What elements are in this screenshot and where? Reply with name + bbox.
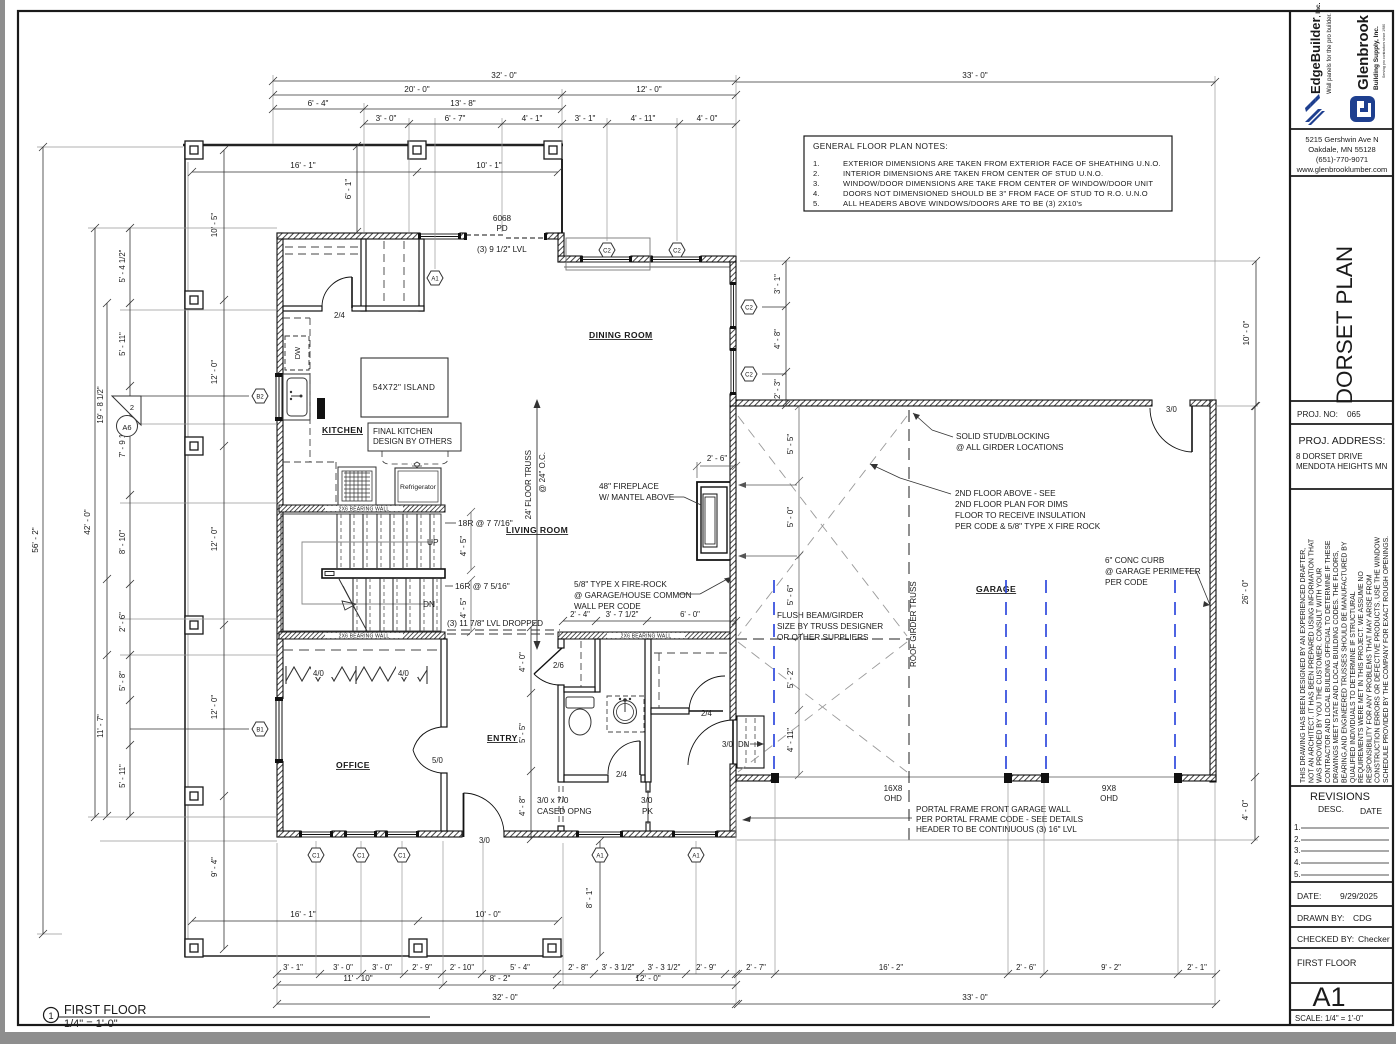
svg-text:6' - 4": 6' - 4" (308, 99, 329, 108)
svg-text:C2: C2 (673, 249, 681, 255)
svg-text:B2: B2 (256, 395, 264, 401)
svg-text:OHD: OHD (884, 794, 902, 803)
svg-text:PROJ. ADDRESS:: PROJ. ADDRESS: (1299, 435, 1386, 447)
svg-text:2' - 1": 2' - 1" (1187, 963, 1207, 972)
svg-text:Building Supply, Inc.: Building Supply, Inc. (1373, 26, 1380, 90)
svg-text:Checker: Checker (1358, 934, 1390, 944)
svg-text:2' - 6": 2' - 6" (1016, 963, 1036, 972)
svg-text:OHD: OHD (1100, 794, 1118, 803)
svg-text:4' - 11": 4' - 11" (631, 114, 656, 123)
svg-text:33' - 0": 33' - 0" (962, 71, 987, 80)
svg-text:FIRST FLOOR: FIRST FLOOR (1297, 958, 1357, 968)
svg-text:2X6 BEARING WALL: 2X6 BEARING WALL (339, 507, 390, 513)
svg-text:C1: C1 (312, 854, 320, 860)
svg-text:REVISIONS: REVISIONS (1310, 791, 1370, 803)
svg-text:2.: 2. (1294, 835, 1301, 844)
svg-text:2: 2 (130, 403, 134, 412)
svg-text:Glenbrook: Glenbrook (1355, 14, 1372, 90)
svg-text:3' - 1": 3' - 1" (575, 114, 596, 123)
svg-text:4' - 5": 4' - 5" (459, 536, 468, 557)
svg-text:INTERIOR DIMENSIONS ARE TAKEN: INTERIOR DIMENSIONS ARE TAKEN FROM CENTE… (843, 169, 1103, 178)
svg-text:3' - 7 1/2": 3' - 7 1/2" (606, 610, 639, 619)
svg-text:UP: UP (427, 537, 439, 547)
svg-text:5' - 4 1/2": 5' - 4 1/2" (118, 249, 127, 282)
svg-text:4' - 0": 4' - 0" (697, 114, 718, 123)
svg-text:5' - 11": 5' - 11" (118, 332, 127, 356)
svg-text:Refrigerator: Refrigerator (400, 484, 437, 491)
svg-text:8' - 2": 8' - 2" (490, 974, 511, 983)
svg-text:2.: 2. (813, 169, 819, 178)
svg-text:DN: DN (423, 599, 435, 609)
svg-text:OR OTHER SUPPLIERS: OR OTHER SUPPLIERS (777, 633, 869, 642)
svg-text:32' - 0": 32' - 0" (491, 71, 516, 80)
svg-text:CDG: CDG (1353, 913, 1372, 923)
svg-text:16R @ 7 5/16": 16R @ 7 5/16" (455, 581, 510, 591)
svg-text:3' - 3 1/2": 3' - 3 1/2" (602, 963, 635, 972)
svg-text:19' - 8 1/2": 19' - 8 1/2" (96, 386, 105, 423)
svg-text:DINING ROOM: DINING ROOM (589, 330, 653, 340)
svg-text:4' - 5": 4' - 5" (459, 598, 468, 619)
svg-text:A1: A1 (596, 854, 604, 860)
svg-text:CASED OPNG: CASED OPNG (537, 807, 592, 816)
svg-text:1.: 1. (813, 159, 819, 168)
svg-text:3' - 0": 3' - 0" (376, 114, 397, 123)
svg-text:Serving pro contractors since: Serving pro contractors since 1980 (1382, 24, 1386, 78)
svg-text:9' - 2": 9' - 2" (1101, 963, 1121, 972)
svg-text:5215 Gershwin Ave N: 5215 Gershwin Ave N (1305, 135, 1378, 144)
svg-text:OFFICE: OFFICE (336, 760, 370, 770)
svg-text:EXTERIOR DIMENSIONS ARE TAKEN: EXTERIOR DIMENSIONS ARE TAKEN FROM EXTER… (843, 159, 1161, 168)
svg-text:BEARING,AND ENGINEERED TRUSSES: BEARING,AND ENGINEERED TRUSSES SHOULD BE… (1342, 541, 1349, 783)
svg-text:KITCHEN: KITCHEN (322, 425, 363, 435)
svg-text:3' - 1": 3' - 1" (773, 274, 782, 294)
svg-text:065: 065 (1347, 410, 1361, 419)
svg-text:12' - 0": 12' - 0" (210, 695, 219, 719)
svg-text:ALL HEADERS ABOVE WINDOWS/DOOR: ALL HEADERS ABOVE WINDOWS/DOORS ARE TO B… (843, 199, 1082, 208)
svg-text:20' - 0": 20' - 0" (404, 85, 429, 94)
svg-text:56' - 2": 56' - 2" (31, 527, 40, 552)
svg-text:10' - 0": 10' - 0" (1242, 320, 1251, 345)
svg-text:W/ MANTEL ABOVE: W/ MANTEL ABOVE (599, 493, 675, 502)
svg-text:16' - 1": 16' - 1" (290, 910, 315, 919)
svg-text:5/8" TYPE X FIRE-ROCK: 5/8" TYPE X FIRE-ROCK (574, 580, 667, 589)
svg-text:2' - 9": 2' - 9" (412, 963, 432, 972)
svg-text:3/0 x 7/0: 3/0 x 7/0 (537, 796, 569, 805)
svg-text:2/6: 2/6 (553, 661, 564, 670)
svg-text:4.: 4. (813, 189, 819, 198)
svg-text:2' - 9": 2' - 9" (696, 963, 716, 972)
svg-text:2' - 6": 2' - 6" (118, 612, 127, 632)
svg-text:2ND FLOOR PLAN FOR DIMS: 2ND FLOOR PLAN FOR DIMS (955, 500, 1068, 509)
svg-text:www.glenbrooklumber.com: www.glenbrooklumber.com (1296, 165, 1388, 174)
svg-text:12' - 0": 12' - 0" (635, 974, 660, 983)
svg-text:PK: PK (642, 807, 653, 816)
svg-text:4/0: 4/0 (398, 669, 410, 678)
svg-text:Oakdale, MN 55128: Oakdale, MN 55128 (1308, 145, 1376, 154)
svg-text:B1: B1 (256, 728, 264, 734)
svg-text:DRAWINGS MEET STATE AND LOCAL: DRAWINGS MEET STATE AND LOCAL BUILDING C… (1333, 550, 1340, 783)
svg-text:RESPONSIBILITY FOR ANY PROBLEM: RESPONSIBILITY FOR ANY PROBLEMS THAT MAY… (1366, 574, 1373, 783)
svg-text:WAS PROVIDED BY YOU THE CUSTOM: WAS PROVIDED BY YOU THE CUSTOMER. CONSUL… (1317, 568, 1324, 783)
svg-text:6' - 0": 6' - 0" (680, 610, 700, 619)
svg-text:DESIGN BY OTHERS: DESIGN BY OTHERS (373, 437, 452, 446)
svg-text:4' - 8": 4' - 8" (773, 329, 782, 349)
svg-text:(651)-770-9071: (651)-770-9071 (1316, 155, 1368, 164)
svg-text:FINAL KITCHEN: FINAL KITCHEN (373, 427, 433, 436)
svg-text:REQUIREMENTS WERE MET IN THIS: REQUIREMENTS WERE MET IN THIS PROJECT. W… (1358, 571, 1365, 783)
svg-text:5' - 8": 5' - 8" (118, 671, 127, 691)
svg-text:3/0: 3/0 (479, 836, 491, 845)
svg-text:A6: A6 (122, 423, 131, 432)
svg-text:1/4" = 1'-0": 1/4" = 1'-0" (1325, 1014, 1363, 1023)
svg-text:18R @ 7 7/16": 18R @ 7 7/16" (458, 518, 513, 528)
svg-text:A1: A1 (431, 277, 439, 283)
svg-text:FLUSH BEAM/GIRDER: FLUSH BEAM/GIRDER (777, 611, 864, 620)
svg-text:16X8: 16X8 (884, 784, 903, 793)
svg-text:5/0: 5/0 (432, 756, 444, 765)
svg-text:9/29/2025: 9/29/2025 (1340, 891, 1378, 901)
svg-text:3' - 0": 3' - 0" (333, 963, 353, 972)
svg-text:13' - 8": 13' - 8" (450, 99, 475, 108)
svg-text:3.: 3. (813, 179, 819, 188)
svg-text:5' - 2": 5' - 2" (786, 668, 795, 689)
svg-text:5' - 4": 5' - 4" (510, 963, 530, 972)
svg-text:4' - 11": 4' - 11" (786, 728, 795, 752)
svg-text:9X8: 9X8 (1102, 784, 1117, 793)
svg-text:THIS DRAWING HAS BEEN DESIGNED: THIS DRAWING HAS BEEN DESIGNED BY AN EXP… (1300, 548, 1307, 783)
svg-text:DORSET PLAN: DORSET PLAN (1332, 246, 1357, 404)
svg-text:@ GARAGE PERIMETER: @ GARAGE PERIMETER (1105, 567, 1201, 576)
svg-text:SCHEDULE PROVIDED BY THE COMPA: SCHEDULE PROVIDED BY THE COMPANY FOR EXA… (1383, 536, 1390, 783)
svg-text:3/0: 3/0 (641, 796, 653, 805)
svg-text:2' - 10": 2' - 10" (450, 963, 474, 972)
svg-text:2/4: 2/4 (616, 770, 628, 779)
svg-text:(3) 9 1/2" LVL: (3) 9 1/2" LVL (477, 245, 527, 254)
svg-text:FLOOR TO RECEIVE INSULATION: FLOOR TO RECEIVE INSULATION (955, 511, 1086, 520)
svg-text:8 DORSET DRIVE: 8 DORSET DRIVE (1296, 452, 1363, 461)
svg-text:SOLID STUD/BLOCKING: SOLID STUD/BLOCKING (956, 432, 1050, 441)
svg-text:6" CONC CURB: 6" CONC CURB (1105, 556, 1165, 565)
svg-text:5' - 6": 5' - 6" (786, 585, 795, 606)
svg-text:42' - 0": 42' - 0" (83, 509, 92, 534)
svg-text:12' - 0": 12' - 0" (636, 85, 661, 94)
svg-text:SCALE:: SCALE: (1295, 1014, 1323, 1023)
svg-text:4' - 0": 4' - 0" (1241, 800, 1250, 821)
svg-text:6' - 1": 6' - 1" (344, 179, 353, 200)
svg-text:16' - 1": 16' - 1" (290, 161, 315, 170)
svg-text:9' - 4": 9' - 4" (210, 857, 219, 877)
svg-text:C2: C2 (745, 373, 753, 379)
svg-text:ROOF GIRDER TRUSS: ROOF GIRDER TRUSS (909, 581, 918, 667)
svg-text:PROJ. NO:: PROJ. NO: (1297, 410, 1338, 419)
svg-text:Wall panels for the pro builde: Wall panels for the pro builder. (1327, 13, 1333, 94)
svg-text:C2: C2 (745, 306, 753, 312)
svg-text:2' - 6": 2' - 6" (707, 454, 728, 463)
svg-text:ENTRY: ENTRY (487, 733, 518, 743)
svg-text:5.: 5. (1294, 870, 1301, 879)
svg-text:PER CODE: PER CODE (1105, 578, 1148, 587)
svg-text:3.: 3. (1294, 846, 1301, 855)
svg-text:3' - 3 1/2": 3' - 3 1/2" (648, 963, 681, 972)
svg-text:3' - 0": 3' - 0" (372, 963, 392, 972)
svg-text:5' - 0": 5' - 0" (786, 507, 795, 528)
svg-text:32' - 0": 32' - 0" (492, 993, 517, 1002)
svg-text:11' - 7": 11' - 7" (96, 714, 105, 738)
svg-text:GENERAL FLOOR PLAN NOTES:: GENERAL FLOOR PLAN NOTES: (813, 141, 948, 151)
svg-text:1.: 1. (1294, 823, 1301, 832)
svg-text:@ GARAGE/HOUSE COMMON: @ GARAGE/HOUSE COMMON (574, 591, 692, 600)
svg-text:@ 24" O.C.: @ 24" O.C. (538, 452, 547, 493)
svg-text:2' - 7": 2' - 7" (746, 963, 766, 972)
svg-text:QUALIFIED INDIVIDUALS TO DETER: QUALIFIED INDIVIDUALS TO DETERMINE IF ST… (1350, 591, 1357, 783)
svg-text:HEADER TO BE CONTINUOUS (3) 16: HEADER TO BE CONTINUOUS (3) 16" LVL (916, 825, 1077, 834)
svg-text:@ ALL GIRDER LOCATIONS: @ ALL GIRDER LOCATIONS (956, 443, 1064, 452)
svg-text:DRAWN BY:: DRAWN BY: (1297, 913, 1344, 923)
svg-text:2' - 4": 2' - 4" (570, 610, 590, 619)
svg-text:4' - 1": 4' - 1" (522, 114, 543, 123)
svg-text:5' - 5": 5' - 5" (518, 723, 527, 743)
svg-text:5' - 5": 5' - 5" (786, 434, 795, 455)
svg-text:A1: A1 (692, 854, 700, 860)
svg-text:11' - 10": 11' - 10" (343, 974, 372, 983)
svg-text:5' - 11": 5' - 11" (118, 764, 127, 788)
svg-text:54X72" ISLAND: 54X72" ISLAND (373, 383, 435, 392)
svg-text:33' - 0": 33' - 0" (962, 993, 987, 1002)
svg-text:8' - 10": 8' - 10" (118, 530, 127, 554)
svg-text:4.: 4. (1294, 858, 1301, 867)
svg-text:3/0: 3/0 (722, 740, 734, 749)
svg-text:DATE: DATE (1360, 806, 1382, 816)
svg-text:C2: C2 (603, 249, 611, 255)
svg-text:10' - 1": 10' - 1" (476, 161, 501, 170)
svg-text:8' - 1": 8' - 1" (585, 888, 594, 909)
svg-text:PER PORTAL FRAME CODE - SEE DE: PER PORTAL FRAME CODE - SEE DETAILS (916, 815, 1084, 824)
svg-text:C1: C1 (357, 854, 365, 860)
svg-text:6' - 7": 6' - 7" (445, 114, 466, 123)
svg-text:1/4" = 1'-0": 1/4" = 1'-0" (64, 1018, 118, 1030)
svg-text:DATE:: DATE: (1297, 891, 1321, 901)
svg-text:10' - 0": 10' - 0" (475, 910, 500, 919)
svg-text:CONTRACTOR AND LOCAL BUILDING: CONTRACTOR AND LOCAL BUILDING OFFICIAL T… (1325, 540, 1332, 783)
svg-text:GARAGE: GARAGE (976, 584, 1016, 594)
svg-text:4/0: 4/0 (313, 669, 325, 678)
svg-text:2/4: 2/4 (334, 311, 346, 320)
svg-text:4' - 8": 4' - 8" (518, 796, 527, 816)
svg-text:5.: 5. (813, 199, 819, 208)
svg-text:26' - 0": 26' - 0" (1241, 579, 1250, 604)
svg-text:DESC.: DESC. (1318, 804, 1344, 814)
svg-text:MENDOTA HEIGHTS MN: MENDOTA HEIGHTS MN (1296, 462, 1388, 471)
svg-text:WINDOW/DOOR DIMENSIONS ARE TAK: WINDOW/DOOR DIMENSIONS ARE TAKE FROM CEN… (843, 179, 1153, 188)
svg-text:4' - 0": 4' - 0" (518, 652, 527, 672)
svg-text:12' - 0": 12' - 0" (210, 360, 219, 384)
svg-text:CONSTRUCTION ERRORS OR DEFECTI: CONSTRUCTION ERRORS OR DEFECTIVE PRODUCT… (1375, 536, 1382, 783)
svg-text:3/0: 3/0 (1166, 405, 1178, 414)
svg-text:1: 1 (48, 1011, 53, 1022)
svg-text:48" FIREPLACE: 48" FIREPLACE (599, 482, 659, 491)
svg-text:24' FLOOR TRUSS: 24' FLOOR TRUSS (524, 450, 533, 519)
svg-text:PER CODE & 5/8" TYPE X FIRE RO: PER CODE & 5/8" TYPE X FIRE ROCK (955, 522, 1101, 531)
svg-text:2X6 BEARING WALL: 2X6 BEARING WALL (339, 634, 390, 640)
svg-text:DW: DW (293, 346, 302, 359)
svg-text:C1: C1 (398, 854, 406, 860)
svg-text:2' - 8": 2' - 8" (568, 963, 588, 972)
svg-text:2ND FLOOR ABOVE - SEE: 2ND FLOOR ABOVE - SEE (955, 489, 1056, 498)
svg-text:A1: A1 (1312, 982, 1345, 1012)
svg-text:16' - 2": 16' - 2" (879, 963, 903, 972)
svg-text:SIZE BY TRUSS DESIGNER: SIZE BY TRUSS DESIGNER (777, 622, 883, 631)
svg-text:FIRST FLOOR: FIRST FLOOR (64, 1003, 146, 1017)
svg-text:(3) 11 7/8" LVL DROPPED: (3) 11 7/8" LVL DROPPED (447, 619, 543, 628)
svg-text:3' - 1": 3' - 1" (283, 963, 303, 972)
svg-text:DOORS NOT DIMENSIONED SHOULD B: DOORS NOT DIMENSIONED SHOULD BE 3" FROM … (843, 189, 1148, 198)
svg-text:10' - 5": 10' - 5" (210, 213, 219, 237)
svg-text:DN: DN (738, 740, 749, 749)
svg-text:NOT AN ARCHITECT. IT HAS BEEN: NOT AN ARCHITECT. IT HAS BEEN PREPARED U… (1308, 538, 1315, 783)
svg-text:2/4: 2/4 (701, 709, 713, 718)
svg-text:PORTAL FRAME FRONT GARAGE WALL: PORTAL FRAME FRONT GARAGE WALL (916, 805, 1071, 814)
svg-text:12' - 0": 12' - 0" (210, 527, 219, 551)
svg-text:CHECKED BY:: CHECKED BY: (1297, 934, 1354, 944)
svg-text:2' - 3": 2' - 3" (773, 379, 782, 399)
